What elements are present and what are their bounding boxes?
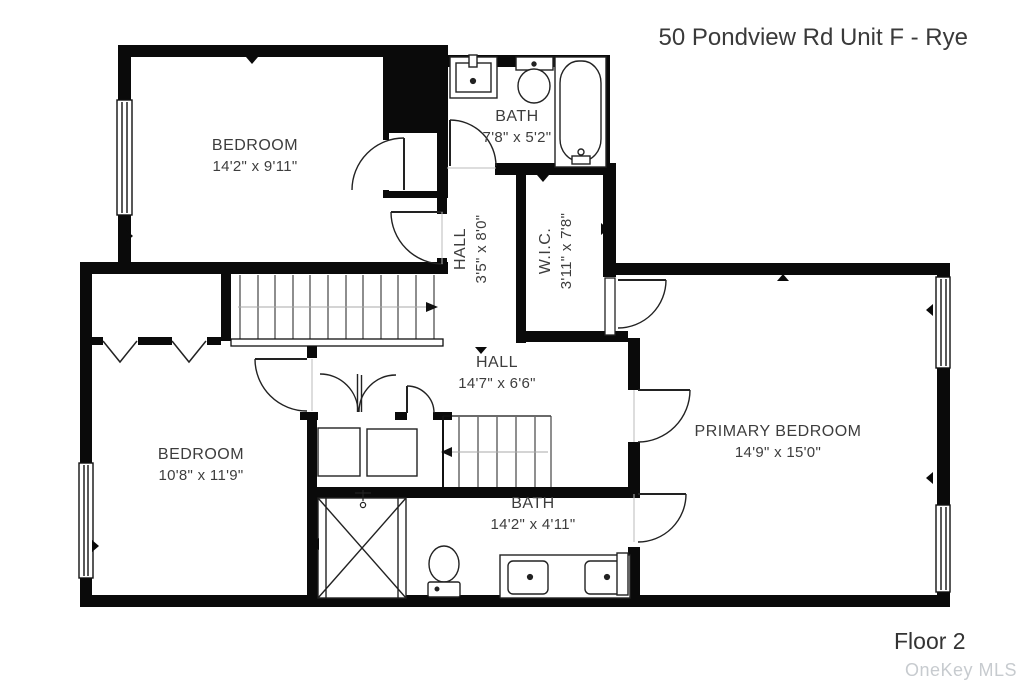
room-name: HALL [397,352,597,373]
room-dims: 7'8" x 5'2" [447,127,587,148]
window [936,277,950,368]
door-bedroom2 [255,359,312,411]
shower [318,490,406,598]
sink-vanity-top-bath [450,55,497,98]
room-label-hall-upper: HALL 3'5" x 8'0" [450,179,492,319]
room-name: BATH [447,106,587,127]
room-name: BEDROOM [155,135,355,156]
stairs-upper [231,275,443,346]
toilet-top-bath [516,57,553,103]
window [936,505,950,592]
room-label-bedroom1: BEDROOM 14'2" x 9'11" [155,135,355,177]
floor-plan-page: 50 Pondview Rd Unit F - Rye BEDROOM 14'2… [0,0,1024,682]
room-dims: 14'9" x 15'0" [658,442,898,463]
double-sink-vanity [500,555,630,598]
room-label-hall-main: HALL 14'7" x 6'6" [397,352,597,394]
room-name: PRIMARY BEDROOM [658,421,898,442]
room-label-primary-bedroom: PRIMARY BEDROOM 14'9" x 15'0" [658,421,898,463]
window [117,100,132,215]
room-label-bath-main: BATH 14'2" x 4'11" [433,493,633,535]
bath-shelf [617,553,628,595]
door-wic [605,278,666,335]
room-dims: 3'11" x 7'8" [556,181,577,321]
room-dims: 3'5" x 8'0" [471,179,492,319]
room-name: BATH [433,493,633,514]
room-label-bedroom2: BEDROOM 10'8" x 11'9" [101,444,301,486]
room-label-wic: W.I.C. 3'11" x 7'8" [535,181,577,321]
floor-plan-drawing [0,0,1024,682]
room-label-bath-top: BATH 7'8" x 5'2" [447,106,587,148]
room-dims: 14'7" x 6'6" [397,373,597,394]
room-dims: 10'8" x 11'9" [101,465,301,486]
room-dims: 14'2" x 9'11" [155,156,355,177]
door-bedroom1 [391,212,443,264]
toilet-main-bath [428,546,460,597]
window [79,463,93,578]
washer [318,428,360,476]
watermark: OneKey MLS [905,660,1017,681]
room-name: W.I.C. [535,181,556,321]
room-dims: 14'2" x 4'11" [433,514,633,535]
stair-direction-arrow [426,302,438,312]
room-name: BEDROOM [101,444,301,465]
stair-rail [231,339,443,346]
floor-label: Floor 2 [894,628,966,655]
door-laundry-double [320,374,396,412]
stairs-lower [441,416,551,487]
room-name: HALL [450,179,471,319]
page-title: 50 Pondview Rd Unit F - Rye [659,24,968,52]
dryer [367,429,417,476]
door-bath-primary [634,494,686,542]
